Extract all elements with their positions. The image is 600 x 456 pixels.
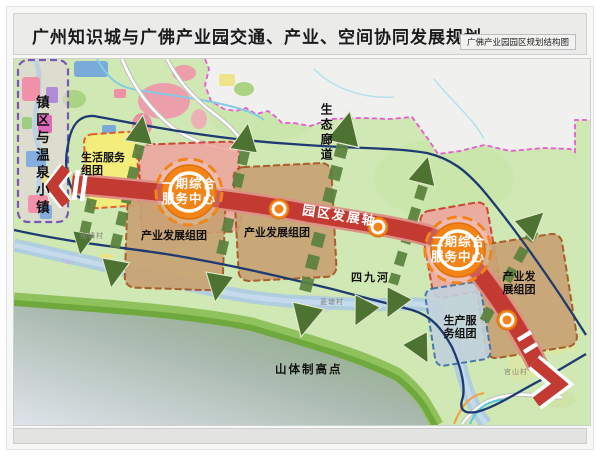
industry-cluster-2-label: 产业发展组团 — [241, 227, 313, 240]
production-cluster-label: 生产服 务组团 — [438, 315, 482, 341]
page-frame: 广州知识城与广佛产业园交通、产业、空间协同发展规划 广佛产业园园区规划结构图 — [6, 6, 594, 450]
life-cluster-line1: 生活服务 — [81, 152, 125, 165]
map-panel: 镇区与温泉小镇 生活服务 组团 一期综合 服务中心 二期综合 服务中心 产业发展… — [13, 58, 591, 426]
river-label: 四九河 — [351, 272, 390, 285]
village-label-2: 菱塘村 — [320, 297, 344, 307]
town-zone-label: 镇区与温泉小镇 — [33, 95, 49, 218]
page-subtitle: 广佛产业园园区规划结构图 — [460, 34, 576, 50]
mountain-label: 山体制高点 — [275, 364, 343, 378]
village-label-1: 细镇村 — [80, 231, 104, 241]
page-title: 广州知识城与广佛产业园交通、产业、空间协同发展规划 — [32, 23, 482, 48]
industry-cluster-1-label: 产业发展组团 — [138, 230, 210, 243]
axis-node-3 — [497, 310, 517, 330]
urban-patch — [114, 89, 126, 98]
footer-bar — [13, 428, 587, 444]
urban-patch — [191, 109, 207, 129]
title-bar: 广州知识城与广佛产业园交通、产业、空间协同发展规划 广佛产业园园区规划结构图 — [13, 13, 587, 55]
industry-cluster-3-label: 产业发 展组团 — [497, 271, 541, 297]
eco-corridor-label: 生态廊道 — [319, 103, 333, 163]
life-cluster-line2: 组团 — [81, 165, 125, 178]
phase1-center-label: 一期综合 服务中心 — [144, 177, 234, 207]
village-label-3: 官山村 — [504, 367, 528, 377]
phase2-center-label: 二期综合 服务中心 — [413, 235, 503, 265]
urban-patch — [219, 74, 235, 86]
urban-patch — [234, 82, 254, 96]
axis-node-1 — [269, 199, 289, 219]
life-cluster-label: 生活服务 组团 — [81, 152, 125, 178]
